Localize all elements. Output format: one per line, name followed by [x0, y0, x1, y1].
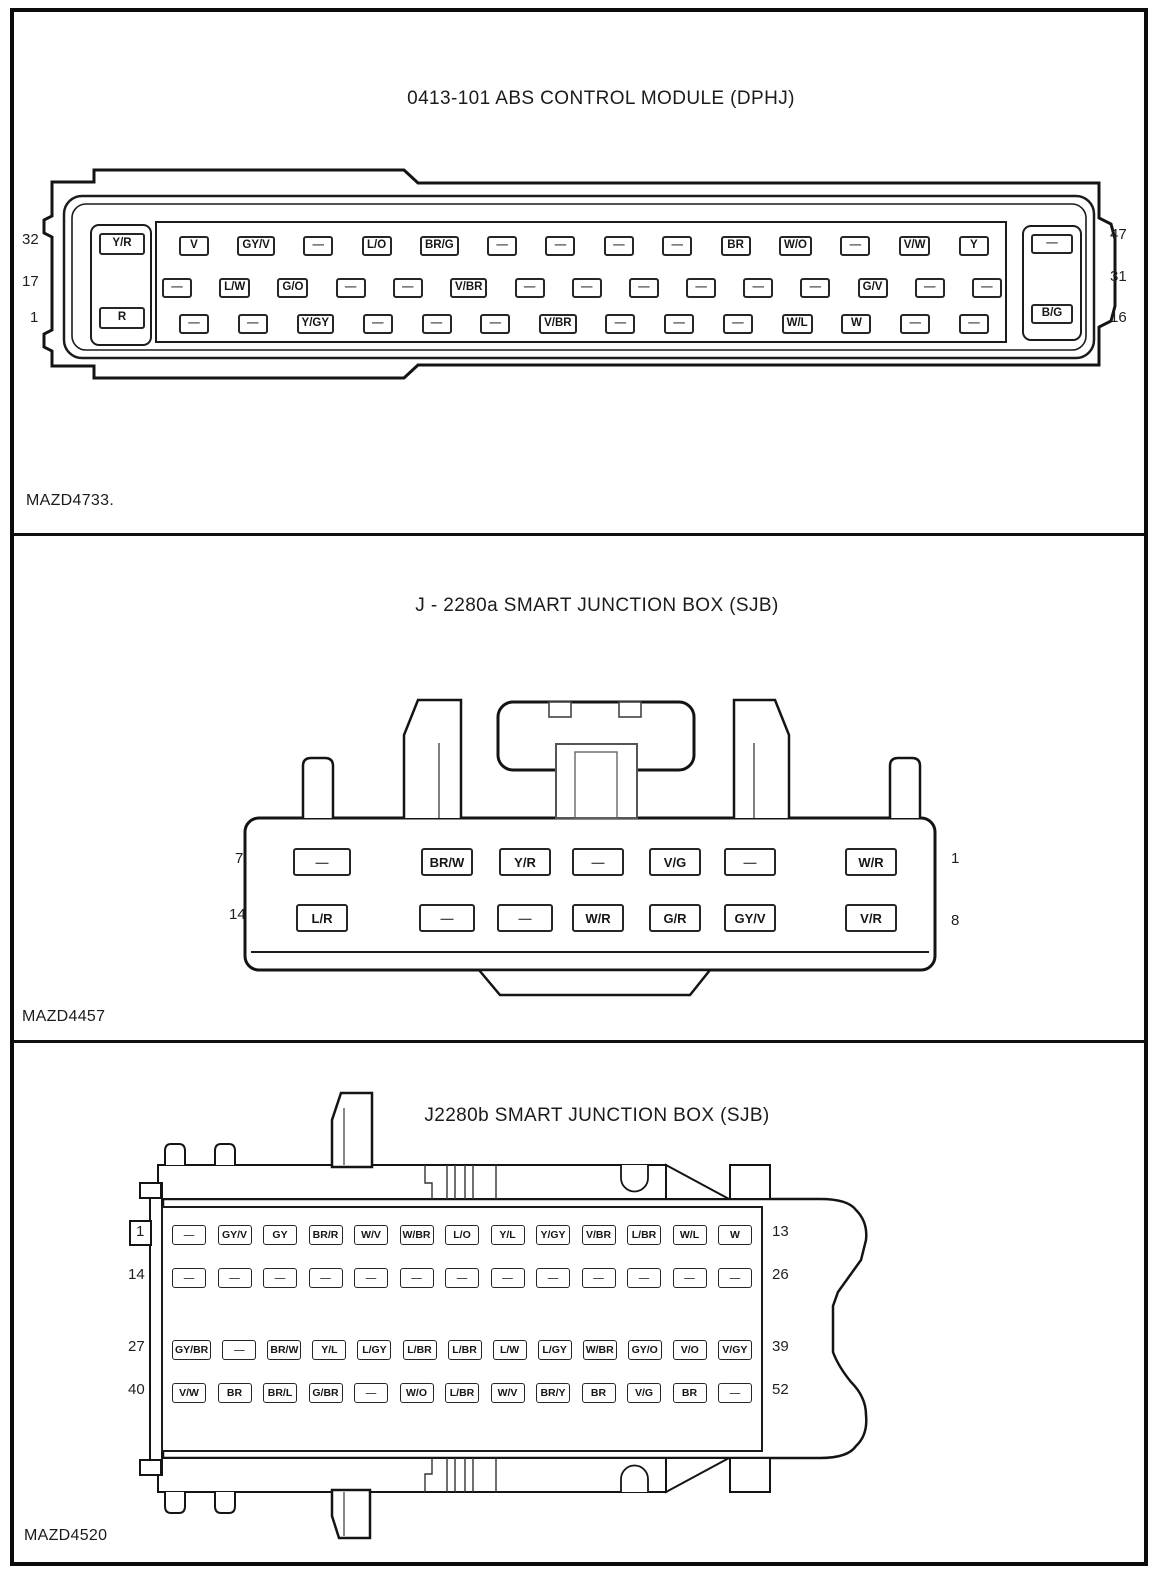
pin-box: L/BR [403, 1340, 437, 1360]
pin-box: W/R [572, 904, 624, 932]
pin-box: — [497, 904, 553, 932]
pin-box: — [724, 848, 776, 876]
pin-box: W/R [845, 848, 897, 876]
pin-box: — [900, 314, 930, 334]
pin-box: — [336, 278, 366, 298]
pin-number: 1 [30, 309, 38, 326]
page-border: 0413-101 ABS CONTROL MODULE (DPHJ) Y/R R… [10, 8, 1148, 1566]
pin-box: BR [673, 1383, 707, 1403]
pin-number: 7 [235, 850, 243, 867]
pin-box: G/V [858, 278, 888, 298]
connector-outline [120, 1088, 900, 1568]
pin-box: V [179, 236, 209, 256]
pin-box-top-left: Y/R [99, 233, 145, 255]
pin-box: BR/W [267, 1340, 301, 1360]
pin-box: Y/R [499, 848, 551, 876]
section-title: 0413-101 ABS CONTROL MODULE (DPHJ) [14, 88, 1144, 110]
pin-box: — [673, 1268, 707, 1288]
pin-number: 47 [1110, 226, 1127, 243]
pin-box: — [664, 314, 694, 334]
pin-box: V/BR [582, 1225, 616, 1245]
pin-box: — [419, 904, 475, 932]
pin-row: ——Y/GY———V/BR———W/LW—— [179, 314, 989, 334]
pin-box: W/O [400, 1383, 434, 1403]
pin-row: —L/WG/O——V/BR——————G/V—— [162, 278, 1002, 298]
pin-box-bottom-left: R [99, 307, 145, 329]
pin-box: — [487, 236, 517, 256]
pin-number: 26 [772, 1266, 789, 1283]
pin-box: V/G [649, 848, 701, 876]
pin-row: —GY/VGYBR/RW/VW/BRL/OY/LY/GYV/BRL/BRW/LW [172, 1225, 752, 1245]
pin-box: — [400, 1268, 434, 1288]
pin-box: GY [263, 1225, 297, 1245]
pin-number: 1 [136, 1223, 144, 1240]
pin-box-bottom-right: B/G [1031, 304, 1073, 324]
section-title: J - 2280a SMART JUNCTION BOX (SJB) [14, 595, 1144, 617]
pin-box: — [515, 278, 545, 298]
pin-box: — [162, 278, 192, 298]
pin-box: BR/Y [536, 1383, 570, 1403]
pin-box: V/W [899, 236, 931, 256]
pin-box: — [915, 278, 945, 298]
pin-box: — [627, 1268, 661, 1288]
pin-box: L/BR [448, 1340, 482, 1360]
pin-box: V/BR [539, 314, 576, 334]
pin-box: V/GY [718, 1340, 752, 1360]
pin-box: — [545, 236, 575, 256]
pin-box: G/R [649, 904, 701, 932]
pin-box: W/O [779, 236, 812, 256]
pin-box: — [303, 236, 333, 256]
pin-box: — [972, 278, 1002, 298]
pin-box: — [718, 1383, 752, 1403]
connector-sjb-b: —GY/VGYBR/RW/VW/BRL/OY/LY/GYV/BRL/BRW/LW… [120, 1088, 900, 1568]
pin-number: 27 [128, 1338, 145, 1355]
pin-box: — [536, 1268, 570, 1288]
pin-number: 32 [22, 231, 39, 248]
pin-box: — [959, 314, 989, 334]
pin-box: V/O [673, 1340, 707, 1360]
pin-box: — [723, 314, 753, 334]
pin-box: W/L [782, 314, 813, 334]
pin-box: W/BR [583, 1340, 617, 1360]
pin-box: Y [959, 236, 989, 256]
pin-box: — [604, 236, 634, 256]
pin-box: — [354, 1383, 388, 1403]
pin-box: BR [218, 1383, 252, 1403]
pin-number: 8 [951, 912, 959, 929]
pin-box: GY/O [628, 1340, 662, 1360]
pin-box: L/R [296, 904, 348, 932]
pin-number: 1 [951, 850, 959, 867]
pin-box: — [309, 1268, 343, 1288]
pin-box: L/O [362, 236, 392, 256]
pin-box: L/GY [357, 1340, 391, 1360]
pin-box: L/BR [445, 1383, 479, 1403]
pin-box: V/BR [450, 278, 487, 298]
section-sjb-b: J2280b SMART JUNCTION BOX (SJB) [14, 1040, 1144, 1562]
pin-box: W [718, 1225, 752, 1245]
pin-box: — [718, 1268, 752, 1288]
pin-box-top-right: — [1031, 234, 1073, 254]
pin-box: — [572, 278, 602, 298]
section-sjb-a: J - 2280a SMART JUNCTION BOX (SJB) [14, 533, 1144, 1040]
pin-box: W/V [354, 1225, 388, 1245]
pin-number: 40 [128, 1381, 145, 1398]
pin-box: L/GY [538, 1340, 572, 1360]
pin-box: Y/L [491, 1225, 525, 1245]
pin-box: — [222, 1340, 256, 1360]
pin-box: L/W [219, 278, 250, 298]
pin-box: L/W [493, 1340, 527, 1360]
pin-box: — [572, 848, 624, 876]
pin-box: — [172, 1268, 206, 1288]
pin-box: — [840, 236, 870, 256]
pin-box: — [743, 278, 773, 298]
pin-box: G/O [277, 278, 308, 298]
pin-number: 17 [22, 273, 39, 290]
pin-box: BR/R [309, 1225, 343, 1245]
pin-number: 52 [772, 1381, 789, 1398]
pin-box: W/L [673, 1225, 707, 1245]
pin-box: — [218, 1268, 252, 1288]
pin-box: BR/G [420, 236, 459, 256]
connector-sjb-a: —BR/WY/R—V/G—W/RL/R——W/RG/RGY/VV/R71418 [225, 688, 985, 1018]
pin-box: — [582, 1268, 616, 1288]
pin-box: BR/L [263, 1383, 297, 1403]
pin-row: GY/BR—BR/WY/LL/GYL/BRL/BRL/WL/GYW/BRGY/O… [172, 1340, 752, 1360]
pin-box: G/BR [309, 1383, 343, 1403]
figure-caption: MAZD4457 [22, 1008, 105, 1026]
pin-box: W/V [491, 1383, 525, 1403]
pin-box: — [179, 314, 209, 334]
pin-box: W/BR [400, 1225, 434, 1245]
pin-box: — [629, 278, 659, 298]
scanned-page: 0413-101 ABS CONTROL MODULE (DPHJ) Y/R R… [0, 0, 1166, 1582]
pin-box: — [480, 314, 510, 334]
pin-box: — [445, 1268, 479, 1288]
pin-box: — [662, 236, 692, 256]
section-abs-control-module: 0413-101 ABS CONTROL MODULE (DPHJ) Y/R R… [14, 12, 1144, 533]
pin-box: BR/W [421, 848, 473, 876]
figure-caption: MAZD4733. [26, 492, 114, 510]
pin-box: — [686, 278, 716, 298]
connector-outline [14, 155, 1160, 390]
pin-box: GY/V [218, 1225, 252, 1245]
pin-row: ————————————— [172, 1268, 752, 1288]
pin-number: 39 [772, 1338, 789, 1355]
pin-box: V/G [627, 1383, 661, 1403]
pin-box: — [238, 314, 268, 334]
pin-box: — [393, 278, 423, 298]
pin-row: V/WBRBR/LG/BR—W/OL/BRW/VBR/YBRV/GBR— [172, 1383, 752, 1403]
pin-box: — [293, 848, 351, 876]
pin-box: — [263, 1268, 297, 1288]
pin-box: BR [582, 1383, 616, 1403]
pin-box: BR [721, 236, 751, 256]
figure-caption: MAZD4520 [24, 1527, 107, 1545]
pin-box: L/BR [627, 1225, 661, 1245]
pin-box: — [800, 278, 830, 298]
pin-box: — [354, 1268, 388, 1288]
pin-box: Y/GY [536, 1225, 570, 1245]
pin-number: 16 [1110, 309, 1127, 326]
pin-box: — [422, 314, 452, 334]
pin-number: 31 [1110, 268, 1127, 285]
pin-box: L/O [445, 1225, 479, 1245]
pin-box: — [491, 1268, 525, 1288]
pin-box: GY/V [237, 236, 274, 256]
pin-number: 14 [229, 906, 246, 923]
pin-box: Y/L [312, 1340, 346, 1360]
pin-box: V/R [845, 904, 897, 932]
pin-box: Y/GY [297, 314, 334, 334]
pin-box: GY/BR [172, 1340, 211, 1360]
pin-number: 14 [128, 1266, 145, 1283]
pin-box: W [841, 314, 871, 334]
connector-abs-module: Y/R R — B/G VGY/V—L/OBR/G————BRW/O—V/WY—… [14, 155, 1160, 390]
pin-box: — [172, 1225, 206, 1245]
pin-box: — [363, 314, 393, 334]
pin-box: V/W [172, 1383, 206, 1403]
pin-row: VGY/V—L/OBR/G————BRW/O—V/WY [179, 236, 989, 256]
pin-number: 13 [772, 1223, 789, 1240]
pin-box: GY/V [724, 904, 776, 932]
pin-box: — [605, 314, 635, 334]
